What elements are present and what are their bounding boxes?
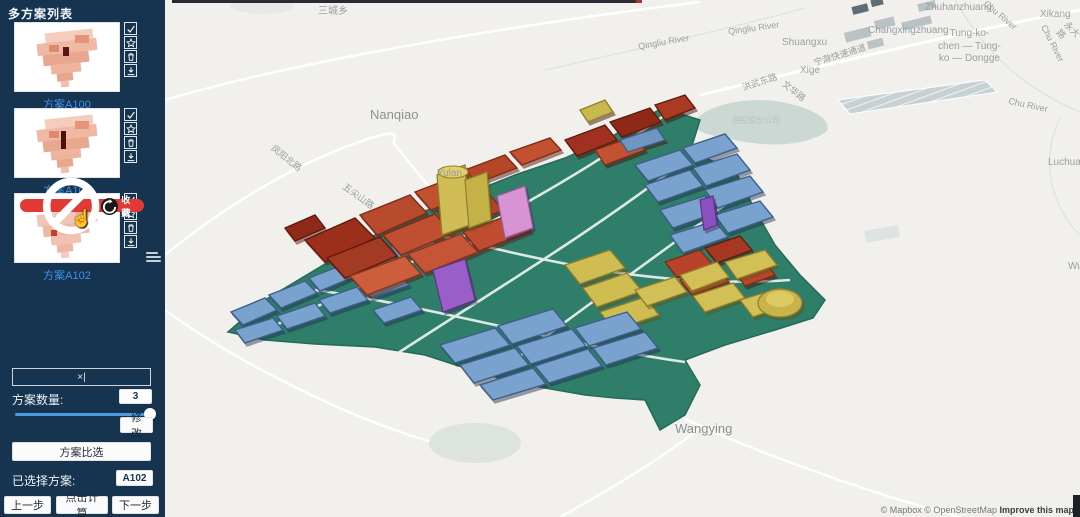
scheme-card-a100: 方案A100 [0, 22, 165, 110]
prev-step-button[interactable]: 上一步 [4, 496, 51, 514]
map-base-layers [165, 0, 1080, 517]
delete-trash-icon[interactable] [124, 136, 137, 149]
attrib-osm[interactable]: © OpenStreetMap [924, 505, 997, 515]
delete-trash-icon[interactable] [124, 221, 137, 234]
scrollbar-corner [1073, 495, 1080, 517]
scheme-thumbnail-a102[interactable]: 收藏 ☝ [14, 193, 120, 263]
scheme-card-a102: 收藏 ☝ 方案A102 [0, 193, 165, 281]
calculate-button[interactable]: 点击计算 [56, 496, 108, 514]
next-step-button[interactable]: 下一步 [112, 496, 159, 514]
app-window: 三城乡 Nanqiao Zhuhanzhuang Xikang Changxin… [0, 0, 1080, 517]
regenerate-icon[interactable] [101, 198, 118, 215]
download-icon[interactable] [124, 64, 137, 77]
attrib-improve-link[interactable]: Improve this map [999, 505, 1074, 515]
scheme-count-label: 方案数量: [12, 391, 63, 408]
download-icon[interactable] [124, 235, 137, 248]
scheme-a100-actions [124, 22, 137, 77]
top-progress-strip [172, 0, 642, 3]
scheme-thumbnail-a101[interactable] [14, 108, 120, 178]
modify-button[interactable]: 修 改 [120, 417, 153, 433]
download-icon[interactable] [124, 150, 137, 163]
favorite-star-icon[interactable] [124, 36, 137, 49]
collapse-panel-button[interactable]: ×| [12, 368, 151, 386]
scheme-label-a102[interactable]: 方案A102 [14, 267, 120, 283]
select-check-icon[interactable] [124, 108, 137, 121]
delete-trash-icon[interactable] [124, 50, 137, 63]
map-attribution: © Mapbox © OpenStreetMap Improve this ma… [881, 505, 1074, 515]
favorite-star-icon[interactable] [124, 122, 137, 135]
model-3d[interactable] [228, 95, 825, 430]
sidebar-title: 多方案列表 [8, 5, 73, 22]
hand-cursor: ☝ [71, 209, 92, 229]
footprint-buildings [838, 0, 997, 243]
map-canvas[interactable]: 三城乡 Nanqiao Zhuhanzhuang Xikang Changxin… [165, 0, 1080, 517]
select-check-icon[interactable] [124, 22, 137, 35]
scheme-sidebar: 多方案列表 [0, 0, 165, 517]
scheme-a101-actions [124, 108, 137, 163]
scheme-thumbnail-a100[interactable] [14, 22, 120, 92]
selected-scheme-label: 已选择方案: [12, 472, 75, 489]
compare-schemes-button[interactable]: 方案比选 [12, 442, 151, 461]
favorited-badge-label: 收藏 [121, 193, 138, 219]
attrib-mapbox[interactable]: © Mapbox [881, 505, 922, 515]
panel-toggle-icon[interactable] [146, 246, 162, 268]
scheme-count-input[interactable]: 3 [119, 389, 152, 404]
selected-scheme-value: A102 [116, 470, 153, 486]
